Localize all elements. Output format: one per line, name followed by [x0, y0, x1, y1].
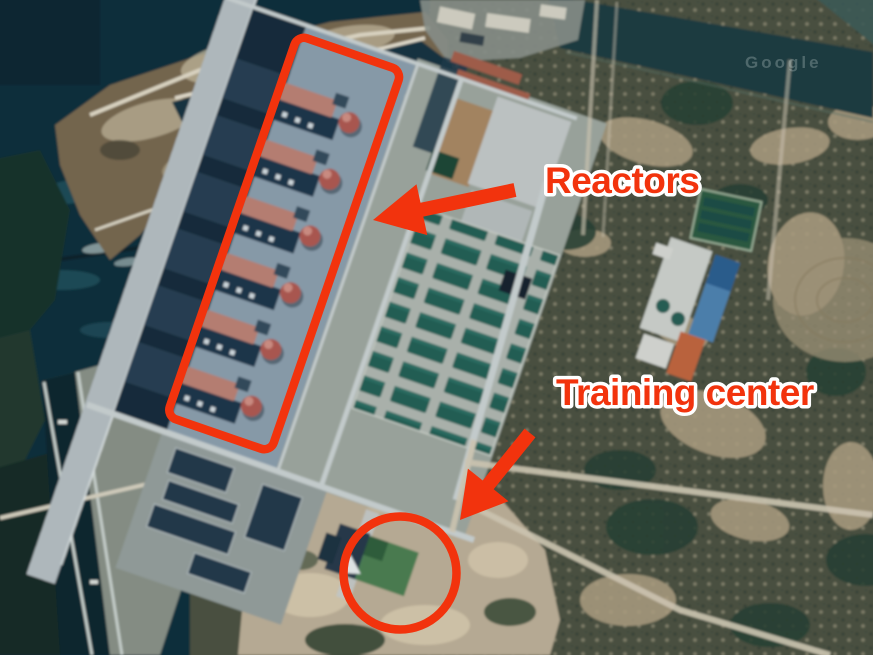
annotated-satellite-map: Google Reactors Training center [0, 0, 873, 655]
training-center-label: Training center [556, 372, 814, 413]
satellite-map-image: Google Reactors Training center [0, 0, 873, 655]
grain-overlay [0, 0, 873, 655]
reactors-label: Reactors [545, 160, 699, 201]
